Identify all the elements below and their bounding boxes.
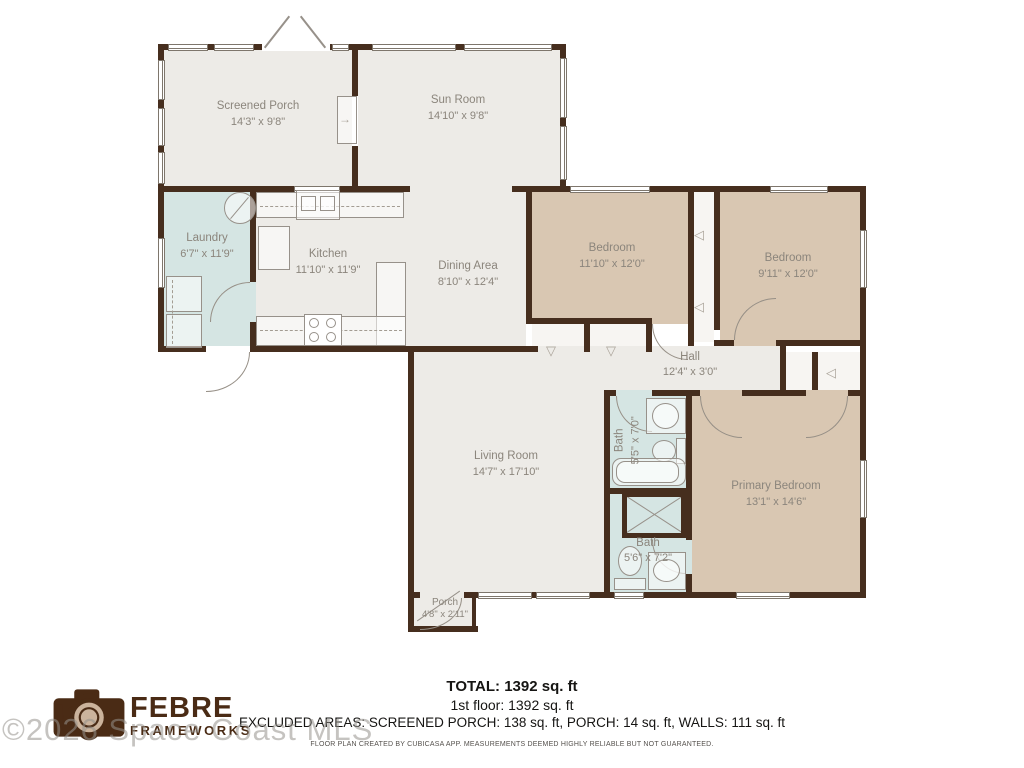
label-living: Living Room 14'7" x 17'10" xyxy=(440,448,572,481)
wall xyxy=(352,44,358,96)
wall xyxy=(812,352,818,390)
door-arc xyxy=(206,352,250,392)
window xyxy=(158,60,165,100)
room-dims: 8'10" x 12'4" xyxy=(408,275,528,291)
floor-plan: → ▽ ▽ ◁ ◁ ◁ xyxy=(0,0,1024,768)
window xyxy=(464,44,552,51)
room-name: Porch xyxy=(408,596,482,609)
burner xyxy=(326,318,336,328)
burner xyxy=(326,332,336,342)
bath1-sink xyxy=(652,403,679,429)
closet-hall-a xyxy=(786,352,812,390)
room-name: Bedroom xyxy=(552,240,672,257)
bath2-toilet-tank xyxy=(614,578,646,590)
wall xyxy=(526,186,532,324)
closet-strip xyxy=(694,192,714,342)
window xyxy=(536,592,590,599)
wall xyxy=(848,390,866,396)
room-dims: 6'7" x 11'9" xyxy=(161,247,253,263)
window xyxy=(860,460,867,518)
room-name: Sun Room xyxy=(378,92,538,109)
room-dims: 14'10" x 9'8" xyxy=(378,109,538,125)
label-bedroom-1: Bedroom 11'10" x 12'0" xyxy=(552,240,672,273)
room-name: Bedroom xyxy=(728,250,848,267)
burner xyxy=(309,332,319,342)
room-dims: 14'7" x 17'10" xyxy=(440,465,572,481)
appliance-dash xyxy=(172,280,173,344)
wall xyxy=(780,346,786,396)
room-name: Screened Porch xyxy=(178,98,338,115)
room-name: Bath xyxy=(612,400,629,480)
label-primary-bedroom: Primary Bedroom 13'1" x 14'6" xyxy=(706,478,846,511)
window xyxy=(332,44,349,51)
burner xyxy=(309,318,319,328)
window xyxy=(158,108,165,146)
door-gap xyxy=(734,340,776,346)
room-dining-open xyxy=(405,186,512,198)
wall xyxy=(776,340,866,346)
closet-door-icon: ◁ xyxy=(694,300,704,313)
window xyxy=(770,186,828,193)
window xyxy=(570,186,650,193)
window xyxy=(158,152,165,184)
wall xyxy=(584,318,590,352)
room-name: Dining Area xyxy=(408,258,528,275)
door-gap xyxy=(262,44,330,51)
window xyxy=(860,230,867,288)
room-dims: 9'11" x 12'0" xyxy=(728,267,848,283)
room-dims: 4'8" x 2'11" xyxy=(408,609,482,621)
closet-door-icon: ▽ xyxy=(606,344,616,357)
window xyxy=(372,44,456,51)
closet-hall-b xyxy=(818,352,860,390)
sink-bowl xyxy=(301,196,316,211)
closet-door-icon: ▽ xyxy=(546,344,556,357)
wall xyxy=(652,390,700,396)
label-porch: Porch 4'8" x 2'11" xyxy=(408,596,482,621)
closet-door-icon: ◁ xyxy=(694,228,704,241)
label-bath-1: Bath 5'5" x 7'0" xyxy=(612,400,645,480)
room-dims: 11'10" x 12'0" xyxy=(552,257,672,273)
label-screened-porch: Screened Porch 14'3" x 9'8" xyxy=(178,98,338,131)
arrow-right-icon: → xyxy=(339,113,351,125)
room-name: Living Room xyxy=(440,448,572,465)
label-sun-room: Sun Room 14'10" x 9'8" xyxy=(378,92,538,125)
label-laundry: Laundry 6'7" x 11'9" xyxy=(161,230,253,263)
mls-watermark: ©2026 Space Coast MLS xyxy=(2,712,373,748)
room-dims: 14'3" x 9'8" xyxy=(178,115,338,131)
shower xyxy=(622,492,686,538)
room-dims: 5'5" x 7'0" xyxy=(628,400,644,480)
window xyxy=(168,44,208,51)
wall xyxy=(688,186,694,302)
wall xyxy=(742,390,806,396)
label-kitchen: Kitchen 11'10" x 11'9" xyxy=(268,246,388,279)
room-name: Bath xyxy=(608,536,688,551)
room-name: Laundry xyxy=(161,230,253,247)
window xyxy=(214,44,254,51)
wall xyxy=(686,574,692,598)
label-dining: Dining Area 8'10" x 12'4" xyxy=(408,258,528,291)
wall xyxy=(408,626,478,632)
window xyxy=(560,58,567,118)
room-dims: 13'1" x 14'6" xyxy=(706,495,846,511)
room-name: Hall xyxy=(640,350,740,365)
wall xyxy=(408,346,414,598)
wall xyxy=(604,390,610,598)
label-bath-2: Bath 5'6" x 7'2" xyxy=(608,536,688,565)
wall xyxy=(414,346,538,352)
room-dims: 11'10" x 11'9" xyxy=(268,263,388,279)
wall xyxy=(714,340,734,346)
room-name: Primary Bedroom xyxy=(706,478,846,495)
room-dims: 12'4" x 3'0" xyxy=(640,365,740,379)
room-dims: 5'6" x 7'2" xyxy=(608,551,688,565)
label-hall: Hall 12'4" x 3'0" xyxy=(640,350,740,379)
room-name: Kitchen xyxy=(268,246,388,263)
window xyxy=(736,592,790,599)
wall xyxy=(686,390,692,540)
window xyxy=(614,592,644,599)
sink-bowl xyxy=(320,196,335,211)
wall xyxy=(714,186,720,330)
window xyxy=(478,592,532,599)
label-bedroom-2: Bedroom 9'11" x 12'0" xyxy=(728,250,848,283)
closet-door-icon: ◁ xyxy=(826,366,836,379)
window xyxy=(560,126,567,180)
